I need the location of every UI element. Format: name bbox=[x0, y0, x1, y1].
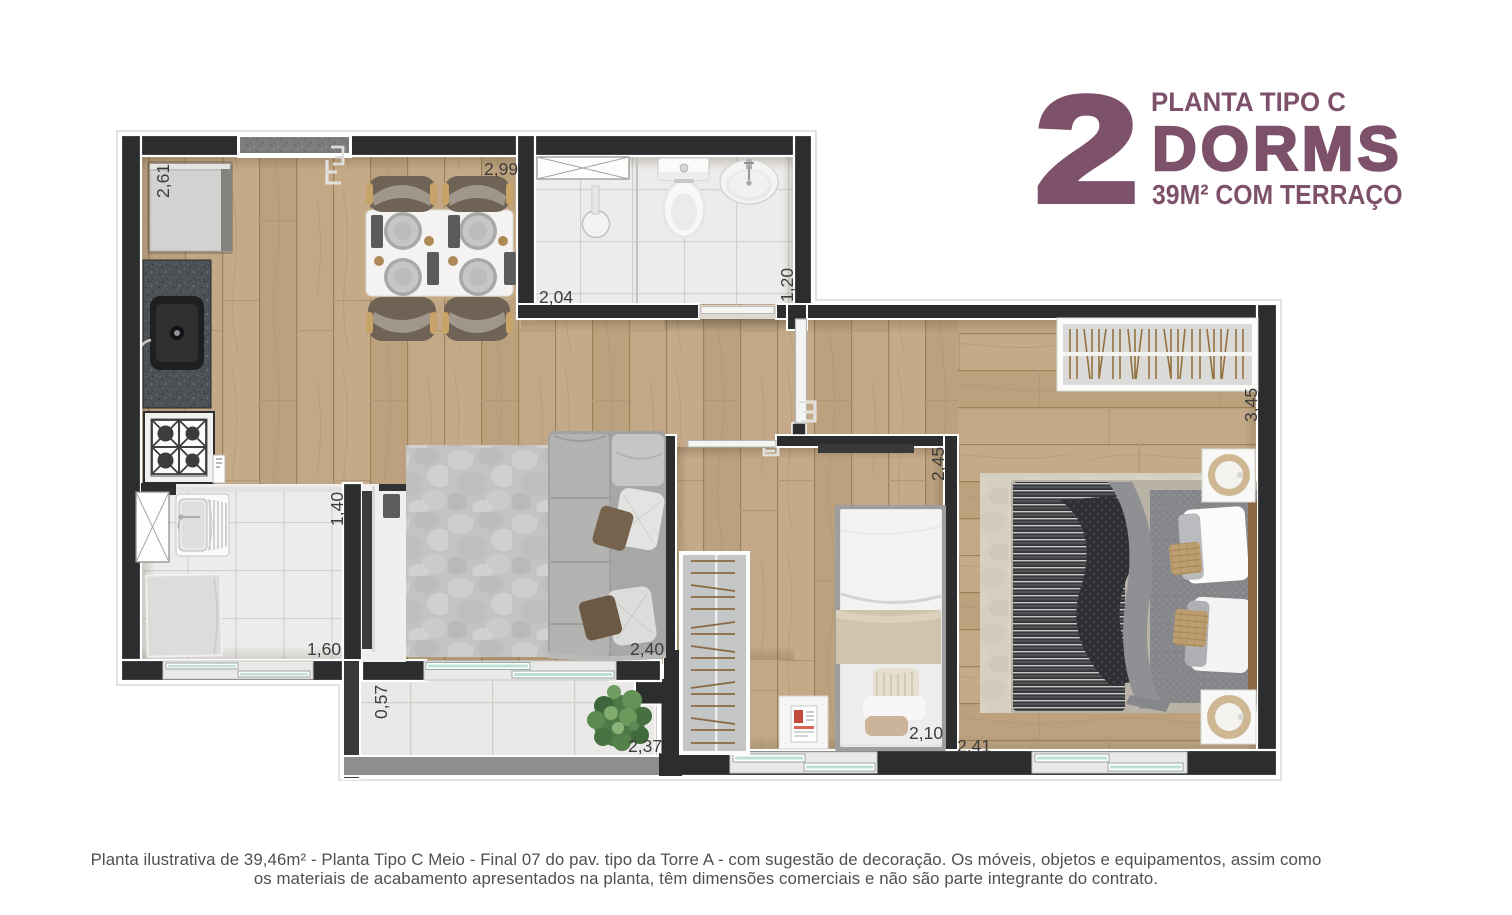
svg-text:2,45: 2,45 bbox=[928, 447, 948, 481]
svg-text:2,37: 2,37 bbox=[628, 736, 662, 756]
svg-text:2,99: 2,99 bbox=[484, 159, 518, 179]
svg-text:0,57: 0,57 bbox=[371, 685, 391, 719]
svg-text:1,40: 1,40 bbox=[327, 492, 347, 526]
svg-text:1,60: 1,60 bbox=[307, 639, 341, 659]
svg-text:2,40: 2,40 bbox=[630, 639, 664, 659]
svg-text:2,04: 2,04 bbox=[539, 287, 573, 307]
svg-text:3,45: 3,45 bbox=[1241, 388, 1261, 422]
svg-text:1,20: 1,20 bbox=[777, 268, 797, 302]
svg-text:2,41: 2,41 bbox=[957, 736, 991, 756]
svg-text:2,61: 2,61 bbox=[153, 164, 173, 198]
svg-text:2,10: 2,10 bbox=[909, 723, 943, 743]
